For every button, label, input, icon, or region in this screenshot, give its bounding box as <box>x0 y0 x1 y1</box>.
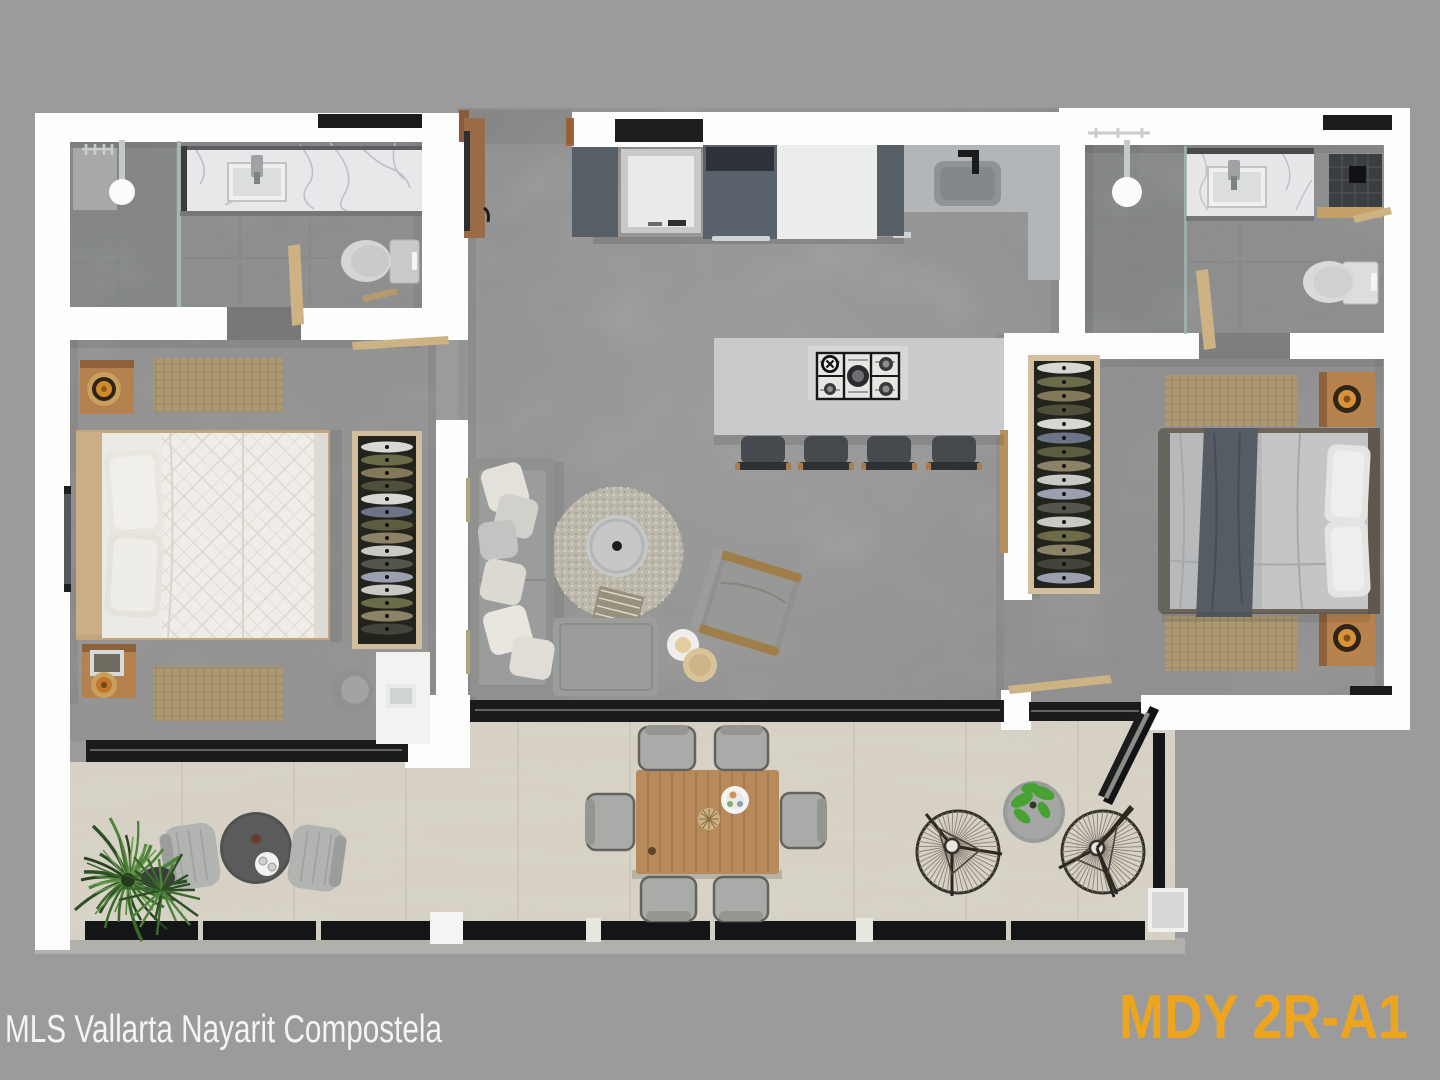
svg-text:MDY 2R-A1: MDY 2R-A1 <box>1119 983 1408 1052</box>
svg-text:MLS Vallarta Nayarit Compostel: MLS Vallarta Nayarit Compostela <box>5 1008 442 1051</box>
